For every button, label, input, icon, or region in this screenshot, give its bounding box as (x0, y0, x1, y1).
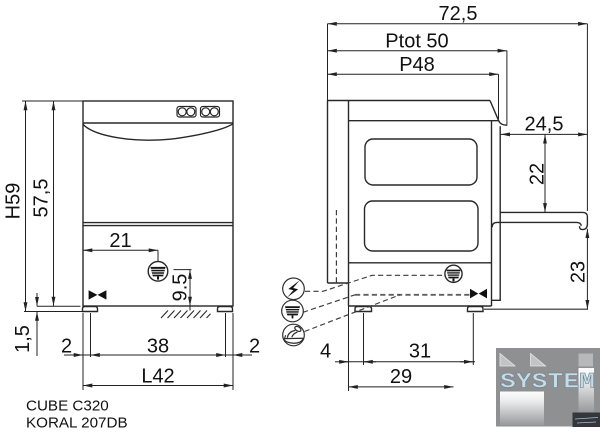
svg-text:57,5: 57,5 (31, 179, 53, 218)
svg-text:P48: P48 (399, 54, 435, 76)
svg-text:31: 31 (409, 341, 431, 363)
svg-text:4: 4 (320, 341, 331, 363)
svg-text:38: 38 (147, 336, 169, 358)
svg-text:2: 2 (61, 336, 72, 358)
svg-text:SYSTEM: SYSTEM (500, 369, 595, 395)
svg-text:2: 2 (249, 336, 260, 358)
svg-text:Ptot 50: Ptot 50 (385, 31, 448, 53)
svg-text:29: 29 (390, 366, 412, 388)
svg-text:22: 22 (527, 163, 549, 185)
svg-text:L42: L42 (141, 366, 174, 388)
svg-text:21: 21 (109, 230, 131, 252)
svg-text:1,5: 1,5 (12, 325, 34, 353)
svg-text:9.5: 9.5 (170, 274, 192, 302)
svg-text:24,5: 24,5 (525, 114, 564, 136)
svg-text:72,5: 72,5 (439, 3, 478, 25)
svg-text:H59: H59 (3, 183, 25, 220)
svg-text:23: 23 (568, 261, 590, 283)
svg-text:CUBE C320: CUBE C320 (26, 398, 109, 415)
svg-text:KORAL 207DB: KORAL 207DB (26, 414, 128, 431)
